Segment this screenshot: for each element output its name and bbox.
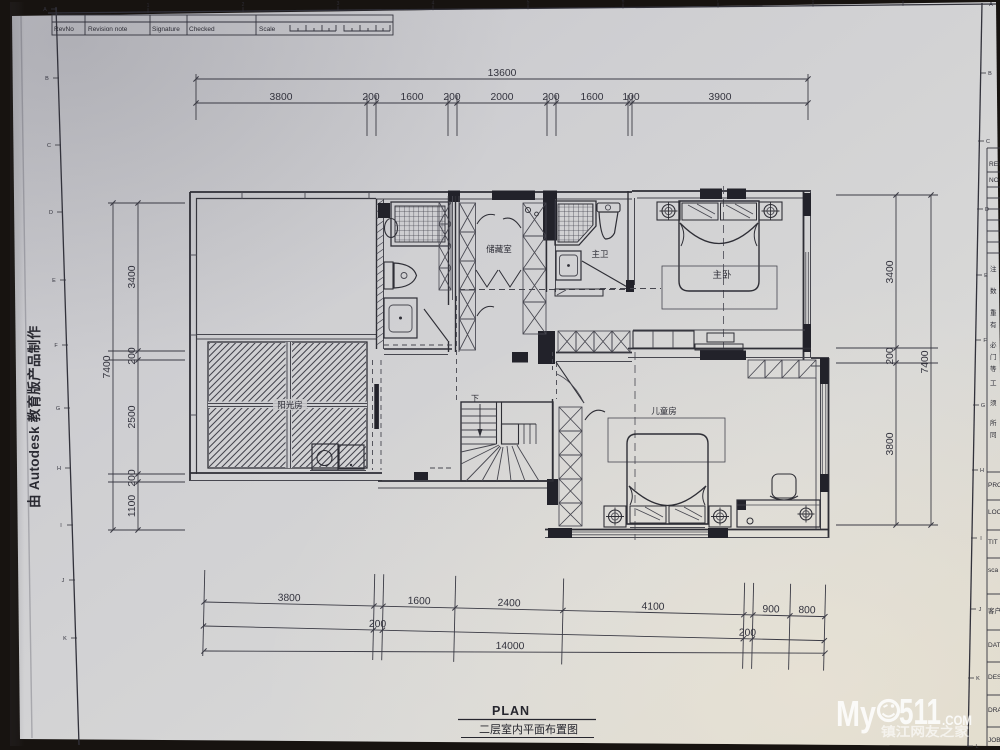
svg-text:镇江网友之家: 镇江网友之家 — [881, 724, 970, 739]
svg-text:7400: 7400 — [102, 355, 113, 378]
svg-text:3800: 3800 — [270, 92, 293, 103]
svg-text:D: D — [49, 210, 53, 216]
svg-text:200: 200 — [369, 619, 387, 630]
svg-text:4: 4 — [432, 0, 435, 6]
svg-text:门: 门 — [990, 352, 997, 361]
svg-text:TIT: TIT — [988, 539, 998, 546]
svg-text:J: J — [979, 607, 982, 613]
svg-text:须: 须 — [990, 398, 997, 407]
svg-text:J: J — [62, 578, 65, 584]
svg-text:工: 工 — [990, 380, 997, 387]
svg-text:下: 下 — [471, 394, 479, 403]
svg-text:3800: 3800 — [278, 593, 301, 605]
svg-text:儿童房: 儿童房 — [651, 406, 677, 416]
svg-text:E: E — [984, 273, 988, 279]
svg-text:LOC: LOC — [988, 509, 1000, 516]
svg-text:阳光房: 阳光房 — [277, 400, 303, 410]
svg-text:7400: 7400 — [920, 350, 931, 373]
svg-text:200: 200 — [127, 347, 138, 364]
svg-text:2000: 2000 — [491, 92, 514, 103]
svg-text:A: A — [989, 2, 993, 8]
svg-text:13600: 13600 — [488, 68, 517, 79]
svg-text:4100: 4100 — [641, 601, 664, 613]
svg-text:DAT: DAT — [988, 642, 1000, 649]
svg-text:5: 5 — [527, 0, 530, 5]
svg-text:200: 200 — [362, 92, 379, 103]
svg-text:注: 注 — [990, 264, 997, 273]
svg-text:C: C — [986, 139, 990, 145]
svg-text:数: 数 — [990, 286, 997, 295]
svg-text:B: B — [45, 76, 49, 82]
svg-text:1600: 1600 — [581, 92, 604, 103]
svg-text:有: 有 — [990, 320, 997, 329]
svg-text:3400: 3400 — [127, 265, 138, 288]
svg-text:3: 3 — [337, 1, 340, 7]
svg-text:重: 重 — [990, 309, 997, 317]
svg-text:800: 800 — [798, 605, 816, 616]
svg-text:主卧: 主卧 — [712, 269, 732, 281]
svg-text:必: 必 — [990, 340, 997, 349]
svg-text:PLAN: PLAN — [492, 704, 530, 718]
svg-text:储藏室: 储藏室 — [486, 244, 512, 254]
svg-text:6: 6 — [622, 0, 625, 5]
svg-text:My: My — [836, 693, 876, 734]
svg-text:Checked: Checked — [189, 26, 215, 33]
svg-text:sca: sca — [988, 567, 999, 574]
svg-text:NO.: NO. — [989, 177, 1000, 184]
svg-text:同: 同 — [990, 431, 997, 439]
svg-text:G: G — [981, 403, 985, 409]
svg-text:9: 9 — [902, 0, 905, 2]
svg-text:所: 所 — [990, 418, 997, 427]
svg-text:K: K — [63, 636, 67, 642]
svg-text:3400: 3400 — [885, 260, 896, 283]
svg-text:等: 等 — [990, 364, 997, 373]
svg-text:B: B — [988, 71, 992, 77]
svg-text:Signature: Signature — [152, 26, 180, 33]
svg-text:2500: 2500 — [127, 405, 138, 428]
svg-text:REV: REV — [989, 161, 1000, 168]
svg-text:200: 200 — [542, 92, 559, 103]
svg-text:L: L — [975, 744, 978, 750]
svg-text:JOB: JOB — [988, 737, 1000, 744]
svg-text:8: 8 — [812, 0, 815, 3]
svg-text:3800: 3800 — [885, 432, 896, 455]
svg-text:二层室内平面布置图: 二层室内平面布置图 — [479, 722, 578, 736]
svg-text:C: C — [47, 143, 51, 149]
svg-text:G: G — [56, 406, 60, 412]
svg-text:E: E — [52, 278, 56, 284]
svg-text:H: H — [57, 466, 61, 472]
svg-text:3900: 3900 — [709, 92, 732, 103]
svg-text:K: K — [976, 676, 980, 682]
svg-text:200: 200 — [885, 347, 896, 364]
svg-text:H: H — [980, 468, 984, 474]
svg-text:DRA: DRA — [988, 707, 1000, 714]
svg-text:200: 200 — [443, 92, 460, 103]
svg-text:14000: 14000 — [496, 641, 525, 652]
svg-text:1: 1 — [147, 3, 150, 9]
svg-text:主卫: 主卫 — [591, 249, 609, 259]
svg-text:2400: 2400 — [497, 598, 520, 610]
svg-text:1600: 1600 — [408, 596, 431, 608]
svg-text:Revision note: Revision note — [88, 26, 128, 33]
svg-text:PRO: PRO — [988, 482, 1000, 489]
svg-text:Scale: Scale — [259, 26, 276, 33]
svg-text:由 Autodesk 教育版产品制作: 由 Autodesk 教育版产品制作 — [26, 325, 42, 508]
svg-text:900: 900 — [762, 604, 780, 615]
svg-text:客户: 客户 — [988, 606, 1000, 615]
svg-text:A: A — [43, 7, 47, 13]
svg-text:1600: 1600 — [401, 92, 424, 103]
svg-text:200: 200 — [739, 628, 757, 639]
svg-text:DES: DES — [988, 674, 1000, 681]
svg-text:2: 2 — [242, 2, 245, 8]
svg-text:RevNo: RevNo — [54, 26, 74, 33]
svg-text:200: 200 — [127, 469, 138, 486]
svg-text:7: 7 — [717, 0, 720, 4]
svg-text:100: 100 — [622, 92, 639, 103]
svg-text:1100: 1100 — [127, 495, 138, 517]
